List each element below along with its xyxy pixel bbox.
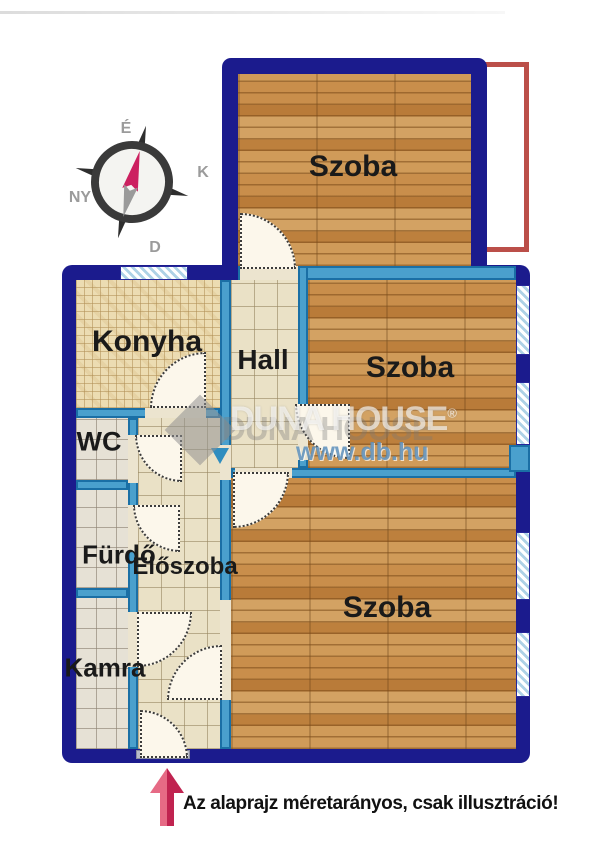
floorplan-image: Szoba Konyha Hall Szoba WC Fürdő Előszob…	[0, 0, 600, 861]
window-szoba-bottom-2	[516, 632, 530, 697]
entrance-arrow-right	[167, 768, 184, 793]
window-szoba-middle-1	[516, 285, 530, 355]
room-label-szoba-top: Szoba	[309, 150, 397, 184]
passage-arrow	[211, 448, 229, 464]
wall-wc-furdo	[76, 480, 128, 490]
balcony-outline	[480, 62, 529, 252]
compass-label-south: D	[149, 239, 161, 256]
window-szoba-bottom-1	[516, 532, 530, 600]
entrance-arrow-left	[150, 768, 167, 793]
room-label-szoba-middle: Szoba	[366, 351, 454, 385]
wall-furdo-kamra	[76, 588, 128, 598]
compass-label-north: É	[121, 118, 132, 137]
window-szoba-middle-2	[516, 382, 530, 445]
opening-konyha	[145, 408, 206, 418]
wall-right-junction	[509, 445, 530, 472]
entrance-arrow	[147, 766, 187, 828]
top-divider	[0, 11, 505, 14]
disclaimer-caption: Az alaprajz méretarányos, csak illusztrá…	[183, 793, 558, 815]
room-label-wc: WC	[77, 427, 122, 458]
entrance-arrow-shaft-left	[160, 793, 167, 826]
room-label-kamra: Kamra	[65, 653, 146, 684]
compass-label-east: K	[197, 164, 209, 181]
window-konyha	[120, 266, 188, 280]
compass-label-west: NY	[69, 189, 92, 206]
room-label-szoba-bottom: Szoba	[343, 591, 431, 625]
room-label-konyha: Konyha	[92, 325, 202, 359]
compass-rose: É K NY D	[60, 100, 210, 260]
room-label-eloszoba: Előszoba	[132, 553, 237, 581]
entrance-arrow-shaft-right	[167, 793, 174, 826]
room-label-hall: Hall	[237, 344, 288, 376]
